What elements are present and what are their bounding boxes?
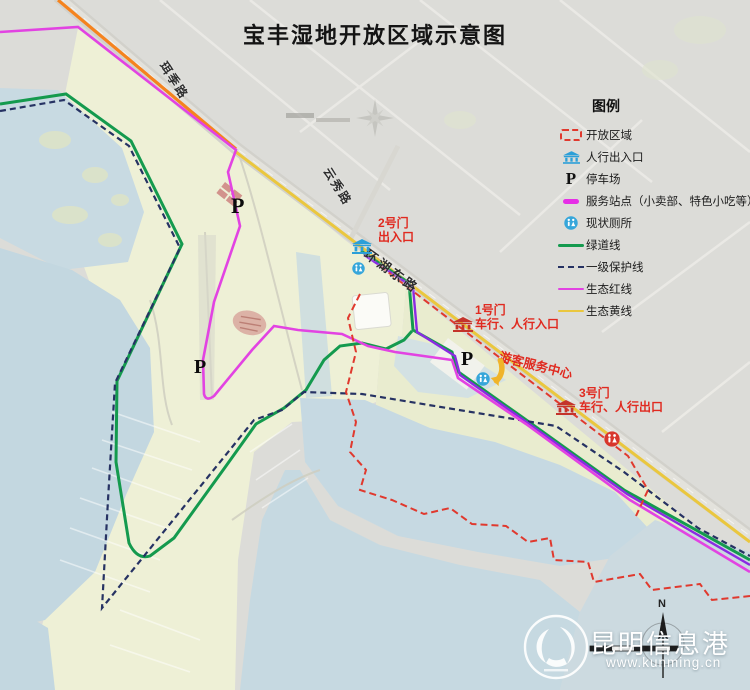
gate1-icon [453, 317, 473, 337]
parking-symbol: P [556, 169, 586, 189]
legend: 图例 开放区域 人行出入口 P 停车场 服务站点（小卖部、特色小吃等） 现状厕所… [556, 96, 750, 322]
legend-item-parking: P 停车场 [556, 168, 750, 190]
legend-item-toilet: 现状厕所 [556, 212, 750, 234]
legend-item-pedestrian-gate: 人行出入口 [556, 146, 750, 168]
toilet-icon [556, 216, 586, 230]
watermark-logo-icon [522, 613, 590, 681]
gate3-icon [556, 400, 576, 420]
north-label: N [658, 598, 666, 610]
service-point-swatch [556, 199, 586, 204]
gate2-label: 2号门 出入口 [378, 216, 414, 244]
legend-item-open-area: 开放区域 [556, 124, 750, 146]
parking-marker-north: P [231, 193, 244, 219]
legend-item-protection-line: 一级保护线 [556, 256, 750, 278]
legend-item-eco-red-line: 生态红线 [556, 278, 750, 300]
eco-red-swatch [556, 288, 586, 291]
parking-marker-gate1: P [461, 348, 473, 371]
watermark-url: www.kunming.cn [606, 655, 721, 670]
gate3-label: 3号门 车行、人行出口 [579, 386, 663, 414]
protection-line-swatch [556, 266, 586, 268]
legend-item-eco-yellow-line: 生态黄线 [556, 300, 750, 322]
page-title: 宝丰湿地开放区域示意图 [0, 18, 750, 50]
greenway-swatch [556, 244, 586, 247]
map-screenshot: 宝丰湿地开放区域示意图 珥季路 云秀路 环湖东路 图例 开放区域 人行出入口 P… [0, 0, 750, 690]
gate-icon [556, 151, 586, 164]
gate2-toilet-icon [352, 262, 365, 280]
open-area-swatch [556, 129, 586, 141]
legend-item-service-point: 服务站点（小卖部、特色小吃等） [556, 190, 750, 212]
parking-marker-west: P [194, 356, 206, 379]
gate3-toilet-icon [604, 431, 620, 452]
legend-title: 图例 [592, 96, 750, 116]
gate2-icon [352, 239, 372, 259]
legend-item-greenway: 绿道线 [556, 234, 750, 256]
gate1-label: 1号门 车行、人行入口 [475, 303, 559, 331]
eco-yellow-swatch [556, 310, 586, 313]
